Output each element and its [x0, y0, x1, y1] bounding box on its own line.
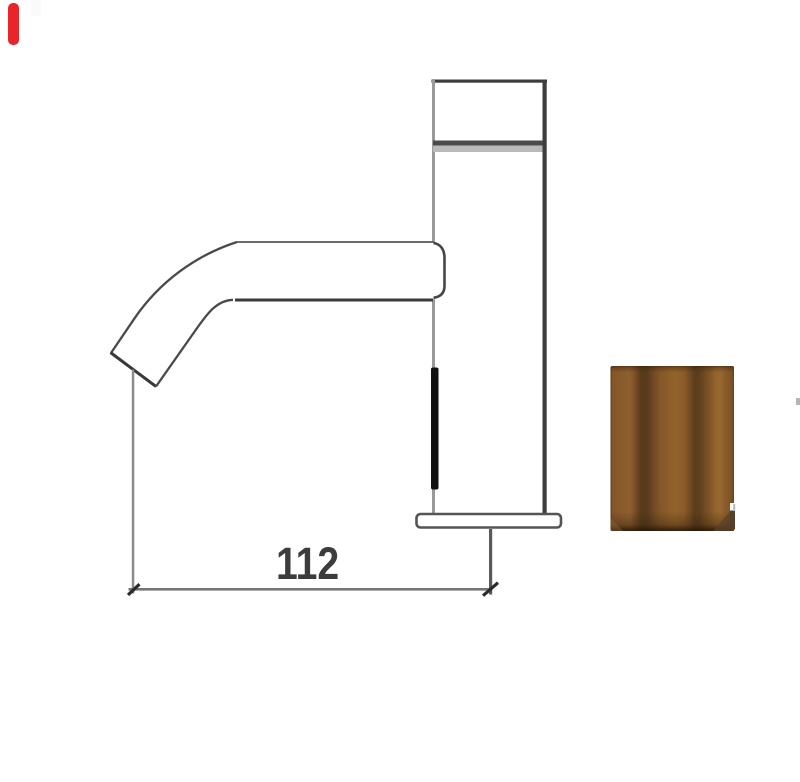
svg-text:112: 112: [276, 538, 339, 588]
